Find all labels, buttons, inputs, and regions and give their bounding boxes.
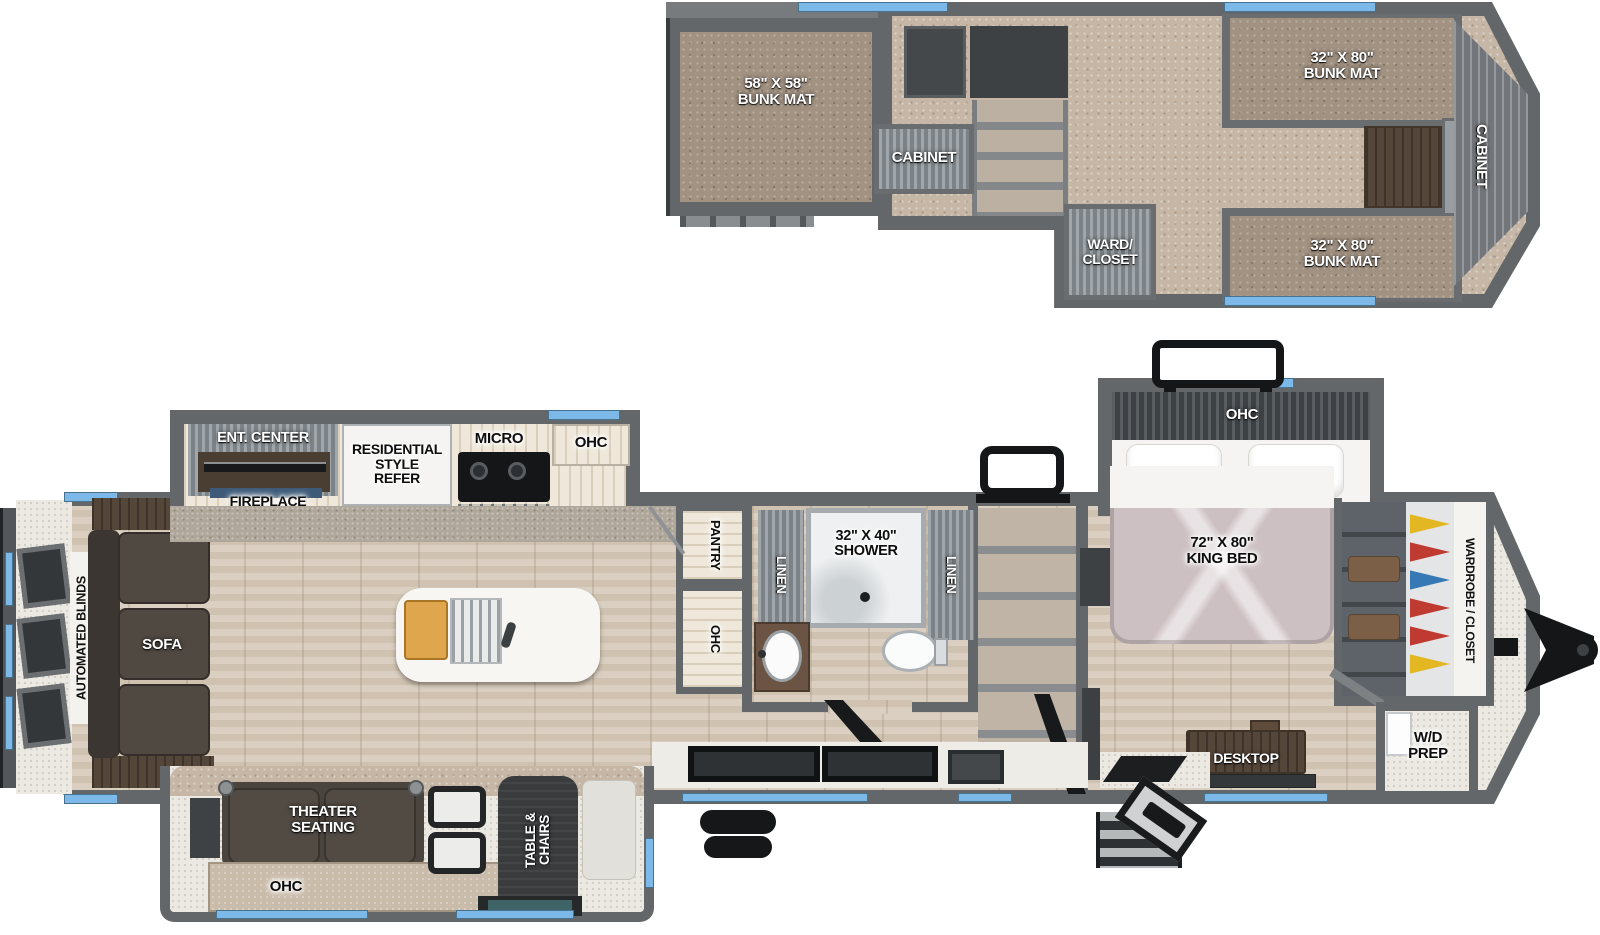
nightstand-left xyxy=(1080,548,1110,606)
bottom-window-1 xyxy=(688,746,820,782)
pantry-label: PANTRY xyxy=(678,508,752,582)
rear-window-strip-2 xyxy=(5,624,13,678)
tv-bracket-foot-right xyxy=(1260,384,1272,392)
micro-label: MICRO xyxy=(456,430,542,448)
theater-cupholder-1 xyxy=(218,780,234,796)
loft-bunk-top-label: 32" X 80" BUNK MAT xyxy=(1240,40,1444,92)
loft-window-bottom xyxy=(1224,296,1376,306)
wardrobe-basket-2 xyxy=(1348,614,1400,640)
sofa-label: SOFA xyxy=(112,634,212,656)
island-sink xyxy=(450,598,502,664)
tv-bracket-bedroom xyxy=(1152,340,1284,388)
bed-sheet-fold xyxy=(1110,466,1334,508)
cutting-board xyxy=(404,600,448,660)
tv-over-stairs xyxy=(980,446,1064,496)
hitch-pin xyxy=(1482,606,1600,694)
ohc-hall-label: OHC xyxy=(678,590,752,688)
loft-stairwell-panel xyxy=(970,26,1068,98)
bottom-window-2 xyxy=(822,746,938,782)
rear-chamfer-window-bottom xyxy=(64,794,118,804)
rear-window-1 xyxy=(17,543,72,608)
kitchen-slide-window xyxy=(548,410,620,420)
rear-window-2 xyxy=(17,613,72,678)
wardrobe-right-wall xyxy=(1486,502,1494,702)
bottom-window-strip-3 xyxy=(1204,793,1328,802)
theater-slide-window-1 xyxy=(216,910,368,919)
loft-nightstand xyxy=(1364,126,1442,208)
exterior-step-2 xyxy=(704,836,772,858)
wd-prep-label: W/D PREP xyxy=(1390,722,1466,770)
ent-center-label: ENT. CENTER xyxy=(192,430,334,448)
theater-tray-1 xyxy=(428,786,486,828)
theater-slide-window-2 xyxy=(456,910,574,919)
loft-window-top-left xyxy=(798,2,948,12)
rear-window-strip-1 xyxy=(5,552,13,606)
wardrobe-shelves xyxy=(1342,502,1406,698)
bottom-counter-item xyxy=(948,750,1004,784)
theater-label: THEATER SEATING xyxy=(238,800,408,840)
loft-window-top-right xyxy=(1224,2,1376,12)
dinette-bench xyxy=(582,780,636,880)
linen-left-label: LINEN xyxy=(758,512,804,638)
ohc-kitchen-label: OHC xyxy=(554,432,628,454)
loft-ward-closet-label: WARD/ CLOSET xyxy=(1066,222,1154,282)
bath-sink xyxy=(762,630,802,682)
rear-window-strip-3 xyxy=(5,696,13,750)
tv-bracket-foot-left xyxy=(1164,384,1176,392)
bedroom-ohc-label: OHC xyxy=(1172,404,1312,426)
desk-mat xyxy=(1204,774,1316,788)
loft-cabinet-mid-label: CABINET xyxy=(876,142,972,174)
loft-nose-cabinet-label: CABINET xyxy=(1466,86,1496,226)
shower-drain xyxy=(860,592,870,602)
theater-cupholder-2 xyxy=(408,780,424,796)
kitchen-counter xyxy=(170,506,684,542)
refrigerator-label: RESIDENTIAL STYLE REFER xyxy=(346,432,448,496)
loft-ohc-panel xyxy=(904,26,966,98)
theater-ohc-label: OHC xyxy=(246,876,326,898)
rear-window-3 xyxy=(17,683,72,748)
exterior-step-1 xyxy=(700,810,776,834)
rv-floorplan-canvas: 58" X 58" BUNK MAT CABINET WARD/ CLOSET … xyxy=(0,0,1600,935)
ent-center-shelf xyxy=(198,452,330,492)
sofa-cushion-1 xyxy=(118,532,210,604)
burner-right xyxy=(508,462,526,480)
dinette-table-label: TABLE & CHAIRS xyxy=(498,780,578,900)
toilet-bowl xyxy=(882,630,938,672)
loft-bunk-bottom-label: 32" X 80" BUNK MAT xyxy=(1240,228,1444,280)
bath-faucet xyxy=(758,650,766,658)
loft-bunk-left-label: 58" X 58" BUNK MAT xyxy=(688,66,864,118)
tv-bar xyxy=(204,462,326,472)
sofa-cushion-3 xyxy=(118,684,210,756)
loft-slide-rail xyxy=(680,216,814,227)
linen-right-label: LINEN xyxy=(928,512,974,638)
king-bed-label: 72" X 80" KING BED xyxy=(1152,528,1292,574)
bottom-window-strip-1 xyxy=(682,793,868,802)
theater-slide-window-side xyxy=(645,838,654,888)
toilet-tank xyxy=(934,638,948,666)
theater-tray-2 xyxy=(428,832,486,874)
loft-stairs xyxy=(972,100,1068,216)
wardrobe-label: WARDROBE / CLOSET xyxy=(1453,502,1487,698)
wardrobe-basket-1 xyxy=(1348,556,1400,582)
bottom-window-strip-2 xyxy=(958,793,1012,802)
shower-label: 32" X 40" SHOWER xyxy=(812,522,920,566)
burner-left xyxy=(470,462,488,480)
theater-side-table xyxy=(190,798,220,858)
